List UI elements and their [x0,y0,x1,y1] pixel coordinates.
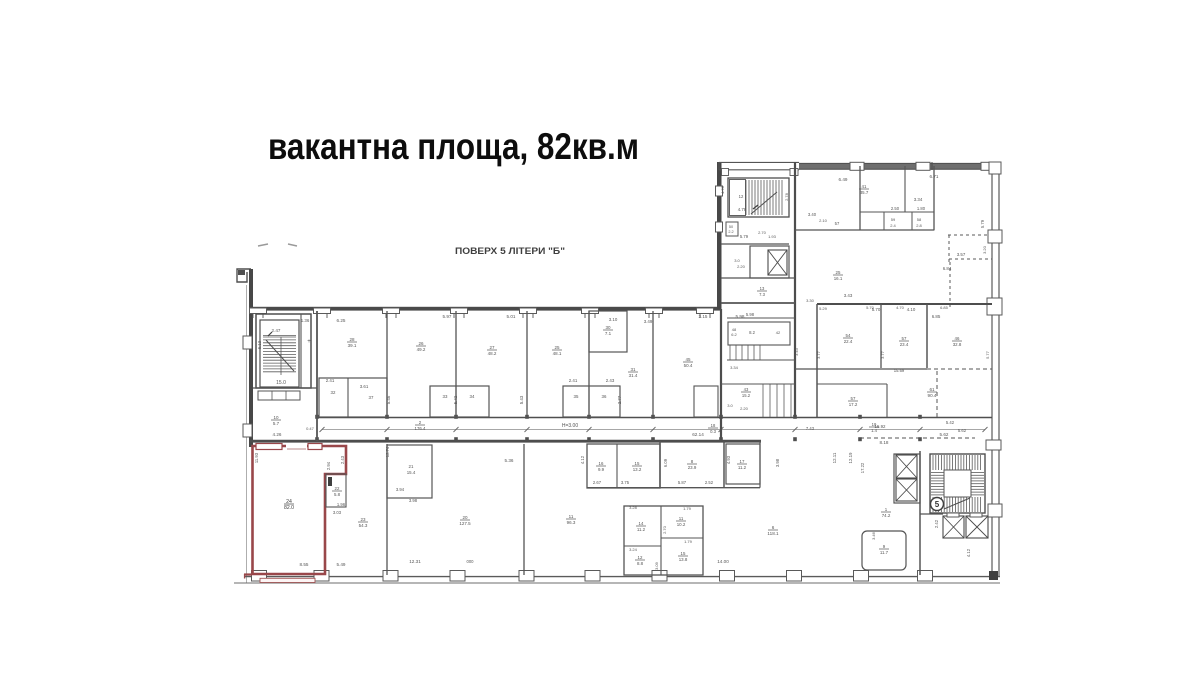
svg-text:вакантна площа, 82кв.м: вакантна площа, 82кв.м [268,126,639,167]
svg-text:3.98: 3.98 [775,458,780,467]
svg-text:15.2: 15.2 [742,393,751,398]
svg-text:34: 34 [470,394,475,399]
svg-text:3.77: 3.77 [816,350,821,359]
svg-text:2.42: 2.42 [934,519,939,528]
svg-text:59: 59 [891,217,896,222]
svg-text:62.14: 62.14 [692,432,704,437]
svg-text:13.8: 13.8 [679,557,688,562]
svg-text:4.12: 4.12 [966,548,971,557]
svg-text:41: 41 [862,184,867,189]
svg-text:3.0: 3.0 [727,403,733,408]
svg-text:5.49: 5.49 [337,562,346,567]
svg-text:3.24: 3.24 [629,547,638,552]
svg-text:3.15: 3.15 [699,314,708,319]
svg-text:11.7: 11.7 [880,550,889,555]
svg-text:10: 10 [273,415,279,420]
svg-text:48.2: 48.2 [488,351,497,356]
svg-text:6.2: 6.2 [731,332,737,337]
svg-text:20: 20 [462,515,468,520]
svg-text:5.7: 5.7 [273,421,280,426]
svg-text:3.30: 3.30 [806,298,815,303]
svg-text:5.79: 5.79 [980,219,985,228]
svg-text:4.93: 4.93 [726,455,731,464]
svg-text:3.77: 3.77 [880,350,885,359]
svg-text:1.79: 1.79 [684,539,693,544]
svg-text:2.50: 2.50 [891,206,900,211]
svg-text:5.13: 5.13 [257,340,262,349]
svg-text:11.2: 11.2 [738,465,747,470]
svg-text:17.2: 17.2 [849,402,858,407]
svg-text:57: 57 [902,336,907,341]
svg-text:12: 12 [739,194,744,199]
svg-text:4.78: 4.78 [738,207,747,212]
svg-text:22: 22 [335,486,340,491]
svg-text:14: 14 [639,521,644,526]
svg-text:8: 8 [691,459,694,464]
svg-text:23.4: 23.4 [900,342,909,347]
svg-text:10.2: 10.2 [677,522,686,527]
svg-text:2.20: 2.20 [737,264,746,269]
svg-text:6.09: 6.09 [663,458,668,467]
svg-text:6: 6 [772,525,775,530]
svg-text:30: 30 [605,325,611,330]
svg-text:3.0: 3.0 [734,258,740,263]
svg-text:21: 21 [409,464,414,469]
svg-text:2.94: 2.94 [326,461,331,470]
svg-text:3.40: 3.40 [808,212,817,217]
svg-text:1.79: 1.79 [683,506,692,511]
svg-text:3.34: 3.34 [914,197,923,202]
svg-text:12.19: 12.19 [848,452,853,464]
svg-text:27: 27 [489,345,495,350]
svg-text:37: 37 [369,395,374,400]
svg-text:1.36: 1.36 [301,318,310,323]
svg-text:2.70: 2.70 [662,525,667,534]
svg-text:5.79: 5.79 [740,234,749,239]
svg-text:5.46: 5.46 [386,395,391,404]
svg-text:2: 2 [419,420,422,425]
svg-text:15.0: 15.0 [276,380,286,386]
svg-text:5.87: 5.87 [678,480,687,485]
svg-text:2.67: 2.67 [593,480,602,485]
svg-text:2.78: 2.78 [784,192,789,201]
svg-text:12.74: 12.74 [385,446,390,457]
svg-text:57: 57 [851,396,856,401]
svg-text:50: 50 [729,225,733,229]
svg-text:90.4: 90.4 [928,393,937,398]
svg-text:5.70: 5.70 [866,305,875,310]
svg-text:54.3: 54.3 [359,523,368,528]
svg-text:2.70: 2.70 [758,230,767,235]
svg-text:23.9: 23.9 [688,465,697,470]
svg-text:7.1: 7.1 [605,331,612,336]
svg-text:8.18: 8.18 [880,440,889,445]
svg-text:5.42: 5.42 [453,395,458,404]
svg-text:9: 9 [883,544,886,549]
svg-text:0.3: 0.3 [710,429,716,434]
svg-text:13: 13 [760,286,765,291]
svg-text:6.85: 6.85 [932,314,941,319]
svg-text:32.8: 32.8 [953,342,962,347]
svg-text:2.43: 2.43 [606,378,615,383]
svg-text:35: 35 [574,394,579,399]
svg-text:5.29: 5.29 [819,306,828,311]
svg-text:3.46: 3.46 [871,531,876,540]
svg-text:31.4: 31.4 [629,373,638,378]
svg-text:11.93: 11.93 [254,452,259,463]
svg-text:22.4: 22.4 [844,339,853,344]
svg-text:H=3.00: H=3.00 [562,423,578,429]
svg-text:3.28: 3.28 [629,505,638,510]
svg-text:3.61: 3.61 [360,384,369,389]
svg-text:2.41: 2.41 [569,378,578,383]
svg-text:3.34: 3.34 [730,365,739,370]
svg-text:3.43: 3.43 [844,293,853,298]
svg-text:16.1: 16.1 [834,276,843,281]
svg-text:3.94: 3.94 [396,487,405,492]
svg-text:32: 32 [331,390,336,395]
svg-text:4.70: 4.70 [896,305,905,310]
svg-text:5.97: 5.97 [443,314,452,319]
svg-text:61: 61 [929,387,935,392]
svg-text:17: 17 [740,459,745,464]
svg-text:ПОВЕРХ 5 ЛІТЕРИ "Б": ПОВЕРХ 5 ЛІТЕРИ "Б" [455,246,565,256]
svg-text:3.03: 3.03 [333,510,342,515]
svg-text:2.47: 2.47 [272,328,281,333]
svg-text:5.62: 5.62 [958,428,967,433]
svg-text:5.43: 5.43 [519,395,524,404]
svg-text:127.5: 127.5 [459,521,471,526]
svg-text:+: + [307,339,311,345]
svg-text:4.12: 4.12 [580,455,585,464]
svg-text:12: 12 [638,555,643,560]
svg-text:96.3: 96.3 [567,520,576,525]
svg-text:6.25: 6.25 [337,318,346,323]
svg-text:5.62: 5.62 [940,432,949,437]
svg-text:9.9: 9.9 [598,467,605,472]
svg-text:6.84: 6.84 [943,266,952,271]
svg-text:7.3: 7.3 [759,292,765,297]
svg-text:176.4: 176.4 [415,426,427,431]
svg-text:4.10: 4.10 [907,307,916,312]
svg-text:4.26: 4.26 [273,432,282,437]
svg-text:11.2: 11.2 [637,527,646,532]
svg-text:1.96: 1.96 [337,502,346,507]
svg-text:2.20: 2.20 [740,406,749,411]
svg-text:2.41: 2.41 [326,378,335,383]
svg-text:2.77: 2.77 [617,395,622,404]
svg-text:74.2: 74.2 [882,513,891,518]
svg-text:6.71: 6.71 [930,174,939,179]
svg-text:2.10: 2.10 [819,218,828,223]
svg-text:11: 11 [679,516,684,521]
svg-text:19: 19 [872,422,877,427]
svg-text:5.42: 5.42 [946,420,955,425]
svg-text:35.7: 35.7 [860,190,869,195]
svg-text:6.49: 6.49 [839,177,848,182]
svg-text:1.93: 1.93 [768,234,777,239]
svg-text:11: 11 [569,514,574,519]
svg-text:2.52: 2.52 [705,480,714,485]
svg-text:23: 23 [360,517,366,522]
svg-text:5.98: 5.98 [746,312,755,317]
svg-text:3.20: 3.20 [982,245,987,254]
svg-text:1: 1 [885,507,888,512]
svg-text:3.75: 3.75 [621,480,630,485]
svg-text:8.55: 8.55 [300,562,309,567]
svg-text:5.8: 5.8 [334,492,341,497]
svg-text:3.10: 3.10 [609,317,618,322]
svg-text:15.4: 15.4 [407,470,416,475]
svg-text:31: 31 [630,367,636,372]
svg-text:6.85: 6.85 [940,305,949,310]
svg-text:5.01: 5.01 [507,314,516,319]
svg-text:49.2: 49.2 [417,347,426,352]
svg-text:3.57: 3.57 [957,252,966,257]
svg-text:18: 18 [711,423,716,428]
svg-text:15: 15 [635,461,640,466]
svg-text:12.31: 12.31 [409,559,421,564]
svg-text:25: 25 [554,345,560,350]
svg-text:2.43: 2.43 [340,455,345,464]
svg-text:2.8: 2.8 [916,223,922,228]
svg-text:26: 26 [418,341,424,346]
svg-text:5.77: 5.77 [985,350,990,359]
svg-text:39.1: 39.1 [348,343,357,348]
svg-text:50.4: 50.4 [684,363,693,368]
svg-text:25: 25 [836,270,841,275]
svg-text:8.2: 8.2 [749,330,755,335]
svg-text:17.22: 17.22 [860,462,865,473]
svg-text:2.4: 2.4 [890,223,896,228]
svg-text:14.00: 14.00 [717,559,729,564]
svg-text:54: 54 [846,333,851,338]
svg-text:3.98: 3.98 [409,498,418,503]
svg-text:57: 57 [835,221,840,226]
svg-text:3.09: 3.09 [654,561,659,570]
svg-text:13.2: 13.2 [633,467,642,472]
svg-text:48.1: 48.1 [553,351,562,356]
svg-text:0.47: 0.47 [306,426,315,431]
svg-text:82.0: 82.0 [284,505,294,511]
svg-text:118.1: 118.1 [767,531,779,536]
svg-text:5.36: 5.36 [505,458,514,463]
svg-text:4.78: 4.78 [720,185,725,194]
svg-text:45: 45 [685,357,691,362]
svg-text:3.49: 3.49 [644,319,653,324]
svg-text:15: 15 [681,551,686,556]
svg-text:16: 16 [599,461,604,466]
svg-text:3.43: 3.43 [794,347,799,356]
svg-text:33: 33 [443,394,448,399]
svg-text:42: 42 [776,330,781,335]
svg-text:8.8: 8.8 [637,561,644,566]
svg-text:28: 28 [349,337,355,342]
svg-text:7.43: 7.43 [806,426,815,431]
svg-text:12.11: 12.11 [832,452,837,463]
svg-text:1.4: 1.4 [871,428,877,433]
svg-text:1.80: 1.80 [917,206,926,211]
svg-text:5: 5 [935,500,940,509]
svg-text:46: 46 [955,336,960,341]
svg-text:58: 58 [917,217,922,222]
svg-text:2.2: 2.2 [728,230,733,234]
svg-text:000: 000 [467,559,475,564]
svg-text:43: 43 [744,387,749,392]
svg-text:36: 36 [602,394,607,399]
